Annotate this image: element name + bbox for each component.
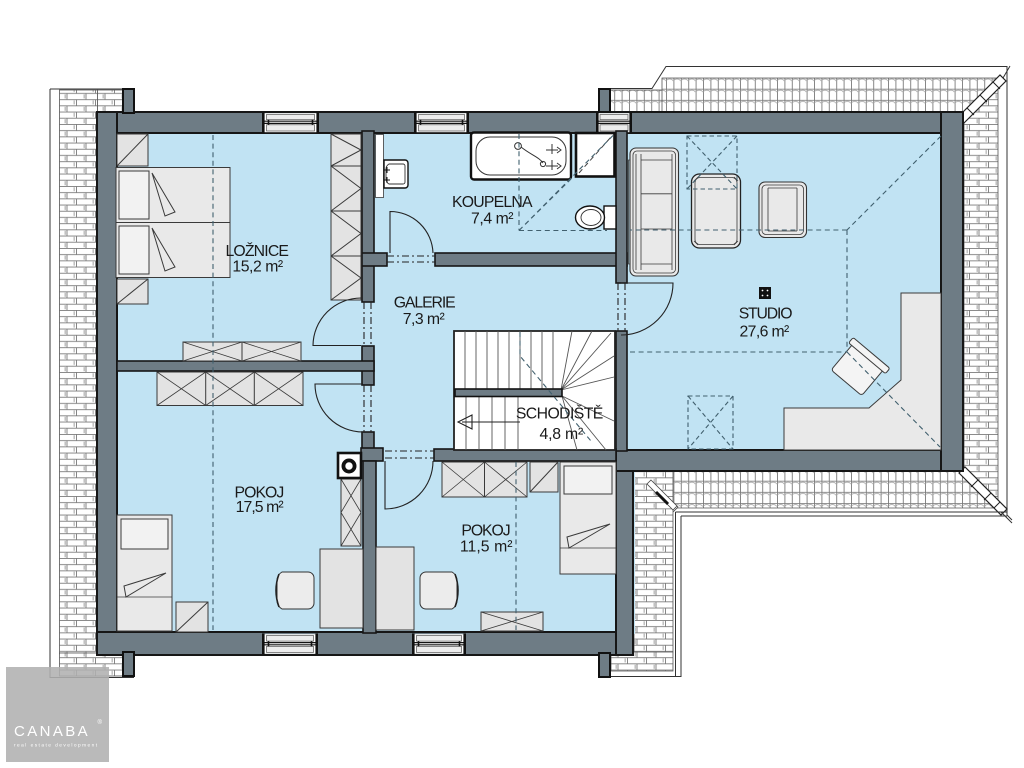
svg-text:7,4 m²: 7,4 m²: [471, 211, 514, 228]
svg-text:POKOJ: POKOJ: [461, 523, 510, 540]
svg-text:LOŽNICE: LOŽNICE: [225, 241, 289, 260]
svg-text:11,5 m²: 11,5 m²: [460, 538, 513, 555]
svg-text:KOUPELNA: KOUPELNA: [452, 194, 533, 211]
svg-text:4,8 m²: 4,8 m²: [540, 426, 584, 443]
svg-text:27,6 m²: 27,6 m²: [740, 323, 790, 340]
svg-text:STUDIO: STUDIO: [739, 305, 793, 322]
svg-text:real estate development: real estate development: [14, 743, 99, 749]
svg-text:GALERIE: GALERIE: [394, 295, 456, 312]
svg-text:7,3 m²: 7,3 m²: [403, 311, 445, 328]
svg-text:17,5 m²: 17,5 m²: [236, 499, 284, 516]
svg-text:®: ®: [98, 719, 103, 726]
svg-text:CANABA: CANABA: [14, 723, 90, 740]
svg-text:15,2 m²: 15,2 m²: [232, 259, 283, 276]
svg-text:SCHODIŠTĚ: SCHODIŠTĚ: [516, 404, 604, 423]
